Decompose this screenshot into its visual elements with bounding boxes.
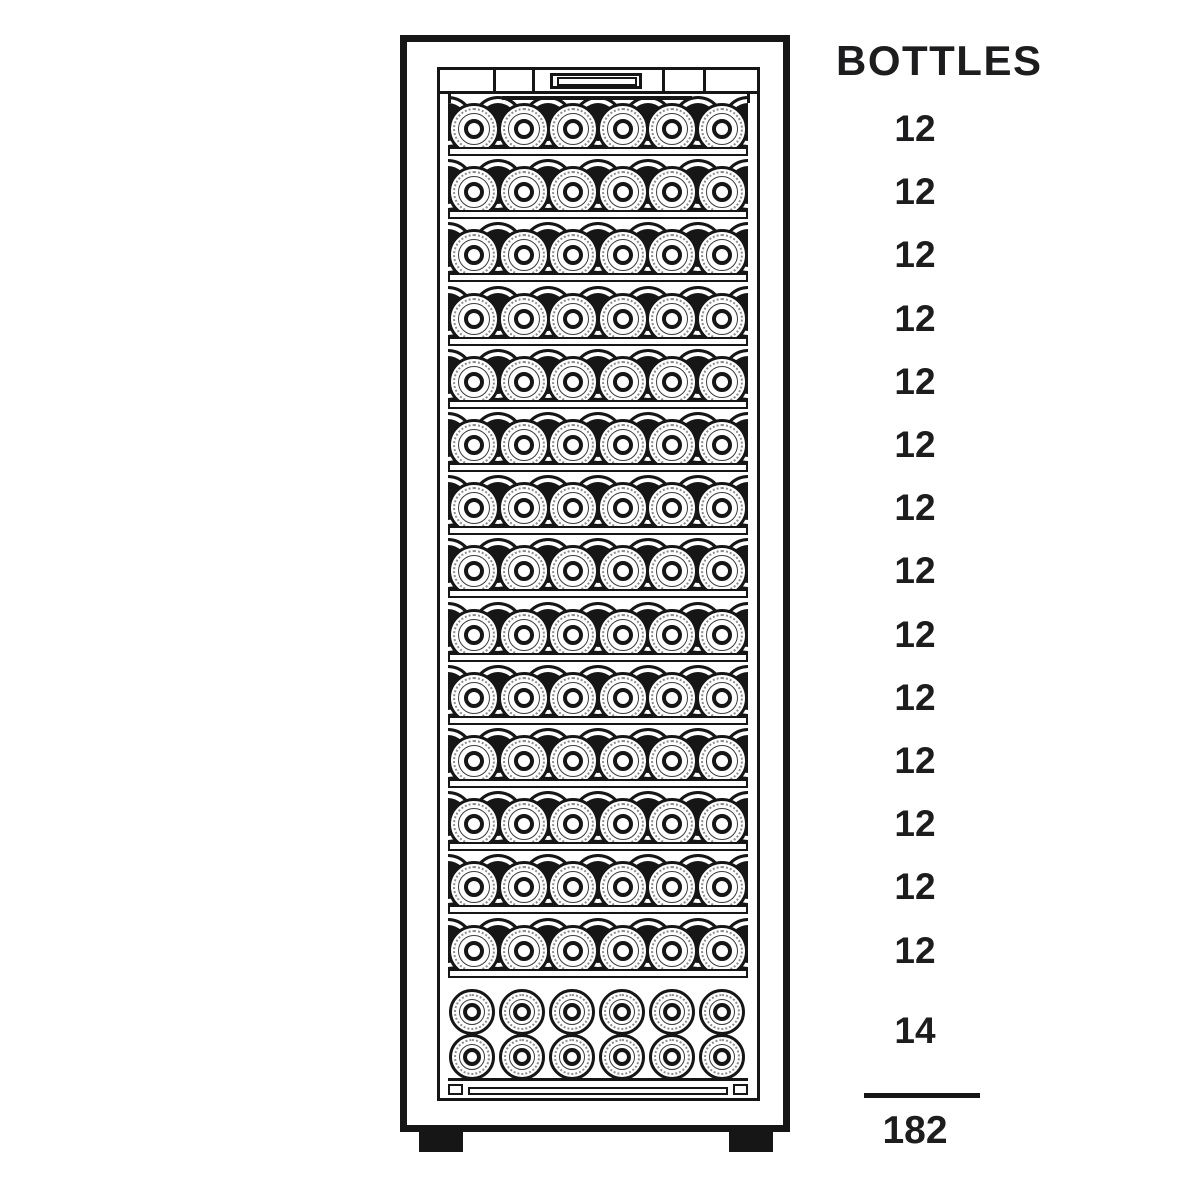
bottle-ring — [613, 498, 633, 518]
bottle-ring — [563, 372, 583, 392]
interior-top-bracket-left — [448, 92, 451, 103]
shelf-row — [448, 472, 748, 534]
bottle-ring — [514, 245, 534, 265]
wine-bottle — [699, 1034, 745, 1080]
bottle-ring — [662, 309, 682, 329]
bottle-ring — [464, 941, 484, 961]
bottle-ring — [563, 814, 583, 834]
bottle-ring — [563, 1003, 581, 1021]
bottle-ring — [613, 1003, 631, 1021]
bottle-ring — [712, 309, 732, 329]
bottom-compartment-count-label: 14 — [855, 1011, 975, 1051]
bottle-ring — [712, 561, 732, 581]
bottle-ring — [613, 941, 633, 961]
bottle-ring — [662, 245, 682, 265]
shelf-count-label: 12 — [855, 741, 975, 781]
cabinet-foot-left — [419, 1131, 463, 1152]
control-panel-divider — [662, 70, 665, 91]
control-panel — [437, 67, 760, 94]
shelf-row — [448, 219, 748, 281]
bottle-ring — [662, 435, 682, 455]
bottle-ring — [514, 498, 534, 518]
shelf-count-label: 12 — [855, 362, 975, 402]
bottle-ring — [563, 561, 583, 581]
shelf-row — [448, 409, 748, 471]
bottle-ring — [514, 688, 534, 708]
bottle-ring — [613, 119, 633, 139]
wine-bottle — [649, 989, 695, 1035]
bottle-ring — [563, 941, 583, 961]
shelf-count-label: 12 — [855, 867, 975, 907]
kick-plate — [468, 1087, 728, 1095]
bottle-ring — [663, 1048, 681, 1066]
shelf-row — [448, 851, 748, 913]
wine-bottle — [499, 989, 545, 1035]
base-rail-end-left — [448, 1084, 463, 1095]
bottle-ring — [464, 561, 484, 581]
shelf-count-label: 12 — [855, 109, 975, 149]
total-count: 182 — [855, 1110, 975, 1152]
bottle-ring — [712, 877, 732, 897]
shelf-count-label: 12 — [855, 615, 975, 655]
shelf-count-label: 12 — [855, 551, 975, 591]
wine-bottle — [499, 1034, 545, 1080]
shelf-row — [448, 93, 748, 155]
wine-bottle — [599, 989, 645, 1035]
bottle-ring — [464, 688, 484, 708]
bottle-ring — [514, 625, 534, 645]
shelf-count-label: 12 — [855, 488, 975, 528]
bottle-ring — [464, 309, 484, 329]
bottle-ring — [613, 751, 633, 771]
bottle-ring — [662, 498, 682, 518]
bottle-ring — [712, 372, 732, 392]
interior-top-bracket-right — [747, 92, 750, 103]
shelf-board — [448, 779, 748, 788]
bottle-ring — [514, 814, 534, 834]
bottle-ring — [712, 751, 732, 771]
bottle-ring — [613, 877, 633, 897]
bottle-ring — [613, 435, 633, 455]
shelf-row — [448, 535, 748, 597]
bottle-ring — [464, 435, 484, 455]
shelf-count-label: 12 — [855, 299, 975, 339]
bottle-ring — [514, 561, 534, 581]
bottle-ring — [613, 245, 633, 265]
shelf-board — [448, 463, 748, 472]
bottle-ring — [464, 625, 484, 645]
bottle-ring — [463, 1048, 481, 1066]
shelf-row — [448, 156, 748, 218]
shelf-board — [448, 273, 748, 282]
bottle-ring — [464, 182, 484, 202]
bottle-ring — [563, 498, 583, 518]
bottle-ring — [712, 498, 732, 518]
bottle-ring — [513, 1048, 531, 1066]
bottle-ring — [514, 751, 534, 771]
bottle-ring — [563, 245, 583, 265]
wine-bottle — [649, 1034, 695, 1080]
shelf-row — [448, 662, 748, 724]
shelf-board — [448, 147, 748, 156]
bottle-ring — [464, 245, 484, 265]
bottle-ring — [514, 182, 534, 202]
shelf-row — [448, 283, 748, 345]
display-screen-inner — [557, 77, 637, 86]
bottle-ring — [713, 1048, 731, 1066]
shelf-count-label: 12 — [855, 678, 975, 718]
control-panel-divider — [703, 70, 706, 91]
control-panel-divider — [493, 70, 496, 91]
bottle-ring — [662, 941, 682, 961]
display-screen — [550, 73, 642, 89]
shelf-count-label: 12 — [855, 235, 975, 275]
bottle-ring — [613, 814, 633, 834]
bottle-ring — [464, 119, 484, 139]
bottle-ring — [613, 182, 633, 202]
bottle-ring — [662, 372, 682, 392]
bottle-ring — [712, 119, 732, 139]
wine-bottle — [599, 1034, 645, 1080]
bottle-ring — [712, 625, 732, 645]
bottle-ring — [613, 625, 633, 645]
bottle-ring — [563, 877, 583, 897]
bottle-ring — [514, 877, 534, 897]
bottle-ring — [712, 182, 732, 202]
bottle-ring — [563, 119, 583, 139]
shelf-board — [448, 210, 748, 219]
wine-bottle — [549, 989, 595, 1035]
bottle-ring — [712, 435, 732, 455]
bottle-ring — [563, 688, 583, 708]
bottle-ring — [514, 435, 534, 455]
bottle-ring — [613, 372, 633, 392]
bottle-ring — [662, 625, 682, 645]
shelf-row — [448, 915, 748, 977]
bottle-ring — [563, 1048, 581, 1066]
bottle-ring — [712, 814, 732, 834]
shelf-count-label: 12 — [855, 931, 975, 971]
bottle-ring — [464, 372, 484, 392]
wine-bottle — [449, 989, 495, 1035]
bottle-ring — [563, 625, 583, 645]
bottle-ring — [713, 1003, 731, 1021]
bottle-ring — [563, 309, 583, 329]
bottle-ring — [563, 435, 583, 455]
shelf-board — [448, 716, 748, 725]
bottle-ring — [712, 941, 732, 961]
bottle-ring — [464, 877, 484, 897]
shelf-count-label: 12 — [855, 425, 975, 465]
shelf-board — [448, 526, 748, 535]
shelf-board — [448, 400, 748, 409]
shelf-row — [448, 725, 748, 787]
bottle-ring — [613, 561, 633, 581]
shelf-row — [448, 599, 748, 661]
bottle-ring — [514, 309, 534, 329]
total-divider — [864, 1093, 980, 1098]
wine-cooler-capacity-diagram: BOTTLES 182 1212121212121212121212121212… — [0, 0, 1200, 1200]
bottle-ring — [464, 498, 484, 518]
bottle-ring — [712, 688, 732, 708]
shelf-board — [448, 653, 748, 662]
bottle-ring — [613, 309, 633, 329]
bottle-ring — [662, 182, 682, 202]
wine-bottle — [699, 989, 745, 1035]
bottle-ring — [464, 751, 484, 771]
shelf-board — [448, 969, 748, 978]
shelf-row — [448, 788, 748, 850]
bottle-ring — [662, 561, 682, 581]
shelf-board — [448, 842, 748, 851]
shelf-board — [448, 337, 748, 346]
bottle-ring — [464, 814, 484, 834]
bottle-ring — [463, 1003, 481, 1021]
base-rail-end-right — [733, 1084, 748, 1095]
cabinet-foot-right — [729, 1131, 773, 1152]
bottle-ring — [514, 372, 534, 392]
bottle-ring — [662, 751, 682, 771]
wine-bottle — [449, 1034, 495, 1080]
base-rail — [448, 1078, 748, 1092]
bottle-ring — [662, 877, 682, 897]
wine-bottle — [549, 1034, 595, 1080]
bottle-ring — [563, 182, 583, 202]
bottle-ring — [513, 1003, 531, 1021]
shelf-count-label: 12 — [855, 172, 975, 212]
bottle-ring — [514, 119, 534, 139]
control-panel-divider — [532, 70, 535, 91]
shelf-board — [448, 905, 748, 914]
bottle-ring — [514, 941, 534, 961]
bottle-ring — [613, 1048, 631, 1066]
bottle-ring — [662, 119, 682, 139]
bottle-ring — [712, 245, 732, 265]
bottle-ring — [662, 814, 682, 834]
bottles-column-title: BOTTLES — [836, 40, 1043, 82]
interior-top-vent — [502, 96, 692, 100]
shelf-board — [448, 589, 748, 598]
bottle-ring — [662, 688, 682, 708]
shelf-row — [448, 346, 748, 408]
bottle-ring — [663, 1003, 681, 1021]
bottle-ring — [613, 688, 633, 708]
bottle-ring — [563, 751, 583, 771]
shelf-count-label: 12 — [855, 804, 975, 844]
